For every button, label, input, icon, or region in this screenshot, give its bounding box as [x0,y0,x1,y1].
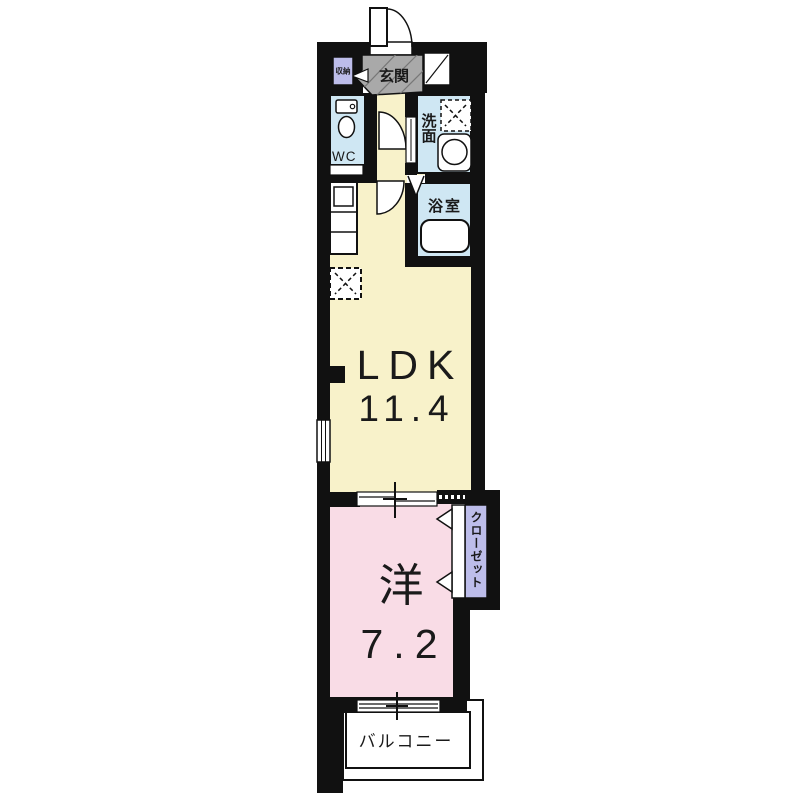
wall-bathroom-top [425,173,471,183]
wall-washroom-left-lower [405,163,417,175]
floor-plan-canvas: バルコニー 玄関 収納 [0,0,800,800]
bathroom-label: 浴室 [428,197,462,215]
ldk-size-label: 11.4 [358,388,455,429]
closet-label: クローゼット [469,511,483,589]
wc-label: WC [332,149,357,164]
wall-washroom-left-upper [405,93,417,117]
closet-bottom-wall [453,598,500,610]
toilet-button-icon [350,104,354,108]
sink-icon [442,140,467,165]
ldk-label: LDK [357,342,464,388]
western-room-size-label: 7.2 [361,621,448,667]
wc-cabinet [330,165,363,175]
closet-door [452,505,465,598]
toilet-bowl-icon [339,117,355,138]
kitchen-sink-icon [334,187,353,206]
wall-bedroom-right [453,610,470,700]
kitchen [330,182,361,299]
wall-bathroom-bottom [405,257,471,267]
washroom-label: 洗面 [420,112,437,144]
closet-right-wall [487,490,500,610]
entrance-label: 玄関 [379,67,409,85]
wall-left [317,42,330,700]
wall-ldk-bedroom-left [330,492,360,507]
western-room-label: 洋 [378,560,423,611]
wall-right [471,87,485,510]
wall-stub-ldk [330,366,345,383]
bathroom: 浴室 [407,175,471,257]
wall-hall-corner [363,173,377,183]
entrance-door-leaf [370,8,387,46]
ldk-window [317,420,330,462]
entrance-storage-label: 収納 [336,66,351,76]
balcony-label: バルコニー [359,732,454,751]
wall-bottom-left-column [317,697,343,793]
bathtub-icon [421,220,469,252]
